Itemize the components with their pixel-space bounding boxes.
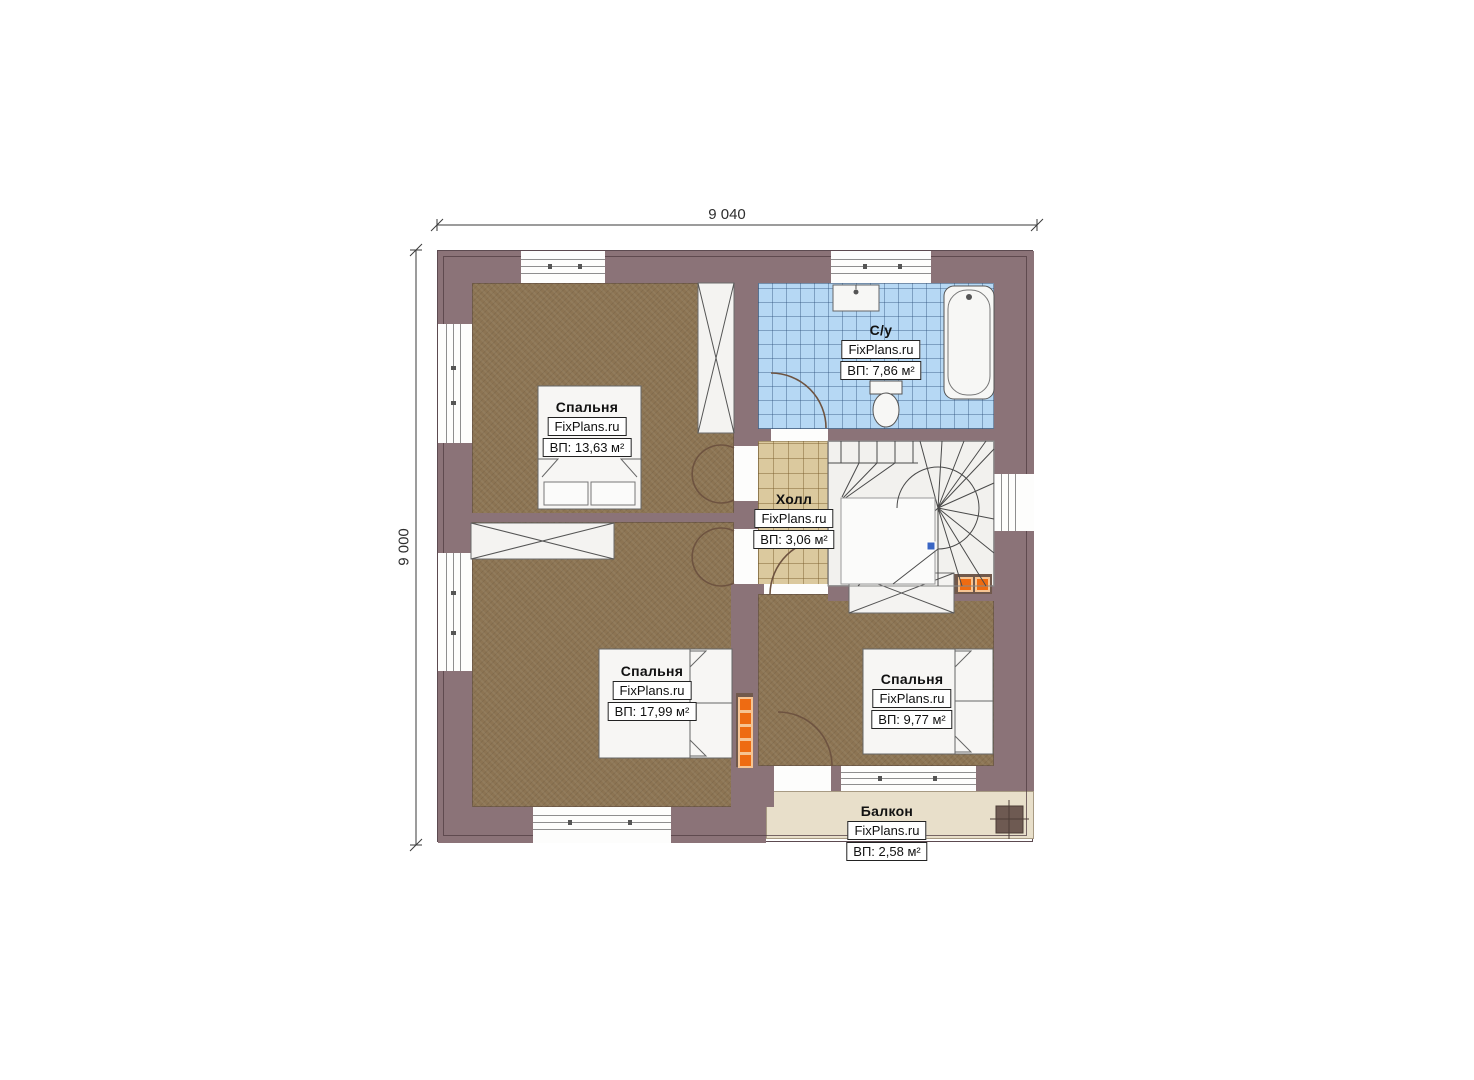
room-area: ВП: 13,63 м² <box>543 438 632 457</box>
stairwell <box>828 441 994 586</box>
room-brand: FixPlans.ru <box>872 689 951 708</box>
room-area: ВП: 2,58 м² <box>846 842 927 861</box>
room-brand: FixPlans.ru <box>841 340 920 359</box>
window <box>438 324 472 443</box>
window <box>438 553 472 671</box>
vent <box>738 753 753 768</box>
wall-segment <box>472 513 734 522</box>
door-opening <box>771 429 828 441</box>
vent <box>738 725 753 740</box>
room-area: ВП: 3,06 м² <box>753 530 834 549</box>
room-name: Спальня <box>871 671 952 687</box>
floor-plan: Спальня FixPlans.ru ВП: 13,63 м² С/у Fix… <box>437 250 1033 842</box>
room-name: Балкон <box>846 803 927 819</box>
wall-segment <box>734 283 758 446</box>
wall-segment <box>828 429 994 441</box>
room-brand: FixPlans.ru <box>547 417 626 436</box>
dimension-left-label: 9 000 <box>396 528 413 566</box>
window <box>994 474 1034 531</box>
room-name: Спальня <box>608 663 697 679</box>
vent <box>738 711 753 726</box>
window <box>841 766 976 791</box>
room-name: Холл <box>753 491 834 507</box>
wall-segment <box>976 766 1034 791</box>
wall-segment <box>758 429 771 441</box>
floor-plan-page: 9 040 9 000 <box>0 0 1474 1080</box>
room-label-bedroom-bottom-right: Спальня FixPlans.ru ВП: 9,77 м² <box>871 671 952 729</box>
window <box>533 807 671 843</box>
room-area: ВП: 9,77 м² <box>871 710 952 729</box>
door-opening <box>764 584 828 594</box>
room-name: С/у <box>840 322 921 338</box>
vent <box>738 697 753 712</box>
room-brand: FixPlans.ru <box>612 681 691 700</box>
room-label-balcony: Балкон FixPlans.ru ВП: 2,58 м² <box>846 803 927 861</box>
room-label-bedroom-top-left: Спальня FixPlans.ru ВП: 13,63 м² <box>543 399 632 457</box>
room-brand: FixPlans.ru <box>754 509 833 528</box>
dimension-top-label: 9 040 <box>708 206 746 223</box>
window <box>831 251 931 283</box>
room-label-hall: Холл FixPlans.ru ВП: 3,06 м² <box>753 491 834 549</box>
room-area: ВП: 17,99 м² <box>608 702 697 721</box>
window <box>521 251 605 283</box>
vent <box>975 577 990 592</box>
wall-segment <box>758 791 766 843</box>
vent <box>958 577 973 592</box>
wall-segment <box>831 766 841 791</box>
room-name: Спальня <box>543 399 632 415</box>
door-opening <box>774 766 831 791</box>
room-label-bathroom: С/у FixPlans.ru ВП: 7,86 м² <box>840 322 921 380</box>
room-area: ВП: 7,86 м² <box>840 361 921 380</box>
vent <box>738 739 753 754</box>
room-brand: FixPlans.ru <box>847 821 926 840</box>
room-label-bedroom-bottom-left: Спальня FixPlans.ru ВП: 17,99 м² <box>608 663 697 721</box>
